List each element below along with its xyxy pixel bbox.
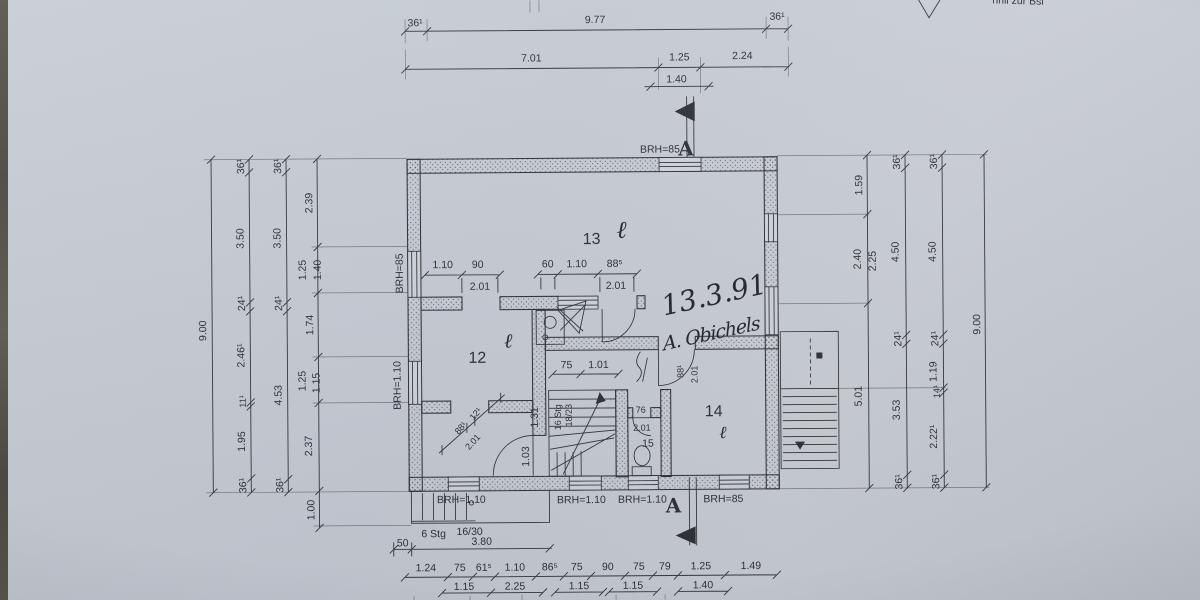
- dim-label: 75: [633, 561, 645, 573]
- dim-label: 36¹: [930, 474, 942, 490]
- dim-label: 2.25: [867, 251, 879, 272]
- dim-label: 24¹: [236, 295, 248, 311]
- dim-label: 1.15: [454, 581, 475, 593]
- dim-label: 1.59: [853, 175, 865, 196]
- handwritten-loop-14: ℓ: [719, 423, 726, 443]
- ext-stair-label: 6 Stg: [421, 528, 446, 540]
- brh-label: BRH=1.10: [391, 361, 403, 410]
- room-number-14: 14: [705, 403, 723, 420]
- dim-label: 76: [636, 405, 646, 415]
- floor-plan-drawing: 36¹ 9.77 36¹ 7.01 1.25 2.24 1.40 9.00 36…: [0, 0, 1200, 600]
- brh-label: BRH=1.10: [557, 494, 606, 506]
- dim-label: 1.03: [520, 446, 532, 467]
- dim-label: 1.40: [693, 579, 714, 591]
- handwritten-loop-12: ℓ: [504, 329, 513, 353]
- brh-label: BRH=1.10: [437, 494, 486, 506]
- dim-label: 4.53: [273, 385, 285, 406]
- photo-of-floor-plan: 36¹ 9.77 36¹ 7.01 1.25 2.24 1.40 9.00 36…: [0, 0, 1200, 600]
- stamp-shape-partial: [914, 0, 944, 18]
- brh-label: BRH=85: [703, 493, 743, 505]
- dim-label: 1.15: [623, 580, 644, 592]
- dim-label: 88¹: [675, 365, 685, 378]
- dim-label: 4.50: [927, 241, 939, 262]
- dim-label: 5.01: [853, 386, 865, 407]
- dim-label: 2.01: [633, 423, 651, 433]
- section-letter-bottom: A: [665, 493, 682, 517]
- dim-label: 11¹: [238, 395, 248, 407]
- dim-label: 36¹: [274, 477, 286, 493]
- walkline-arrow: [795, 442, 805, 450]
- toilet: [632, 446, 651, 476]
- brh-label: BRH=1.10: [618, 494, 667, 506]
- dim-label: 2.01: [470, 281, 491, 293]
- brh-label: BRH=85: [640, 143, 680, 155]
- dim-label: 2.40: [852, 249, 864, 270]
- handwritten-loop-13: ℓ: [616, 216, 626, 244]
- dim-label: 1.01: [588, 359, 609, 371]
- dim-label: 86⁵: [542, 561, 558, 573]
- dim-label: 36¹: [272, 158, 284, 174]
- dim-label: 24¹: [273, 295, 285, 311]
- exterior-stair-right: [780, 331, 839, 468]
- stair-label: 16 Stg: [553, 404, 563, 430]
- section-letter-top: A: [677, 136, 694, 160]
- dim-label: 36¹: [237, 477, 249, 493]
- dim-label: 1.95: [236, 431, 248, 452]
- dim-label: 88¹: [453, 420, 469, 436]
- dim-label: 1.40: [666, 73, 687, 85]
- dim-label: 1.49: [741, 560, 762, 572]
- dim-label: 9.77: [585, 14, 606, 26]
- section-arrow-top: [675, 101, 695, 121]
- dim-label: 9.00: [197, 320, 209, 341]
- dim-label: 60: [542, 258, 554, 270]
- dim-label: 2.01: [689, 366, 699, 384]
- dim-label: 1.00: [305, 500, 317, 521]
- dim-label: 12¹: [468, 406, 484, 422]
- stamp-text-partial: hnll zur Bsl: [992, 0, 1044, 8]
- dim-label: 36¹: [769, 11, 785, 23]
- dim-label: 7.01: [521, 52, 542, 64]
- stair-label: 18/23: [564, 404, 574, 427]
- dim-label: 2.22¹: [928, 424, 940, 449]
- dim-labels-top: 36¹ 9.77 36¹ 7.01 1.25 2.24 1.40: [407, 11, 785, 88]
- dim-label: 90: [472, 259, 484, 271]
- dim-label: 24¹: [892, 331, 904, 347]
- dim-label: 75: [571, 561, 583, 573]
- dim-label: 2.39: [303, 193, 315, 214]
- dim-label: 61⁵: [476, 562, 492, 574]
- dim-label: 9.00: [971, 314, 983, 335]
- dim-label: 14¹: [932, 385, 942, 398]
- handwritten-mark-hall: [636, 352, 647, 382]
- dim-label: 1.15: [569, 580, 590, 592]
- room-number-12: 12: [468, 350, 486, 367]
- section-arrow-bottom: [676, 526, 696, 544]
- room-number-13: 13: [583, 231, 601, 248]
- dim-label: 2.25: [505, 581, 526, 593]
- dim-label: 3.50: [234, 228, 246, 249]
- dim-label: 2.46¹: [235, 343, 247, 368]
- dim-label: 1.74: [304, 315, 316, 336]
- room-number-15: 15: [642, 438, 654, 450]
- dim-label: 2.01: [463, 432, 482, 452]
- dim-label: 1.25: [297, 260, 309, 281]
- dim-label: 2.01: [606, 280, 627, 292]
- dim-label: 1.15: [311, 373, 323, 394]
- dim-labels-right: 1.59 2.40 2.25 5.01 36¹ 4.50 24¹ 3.53 36…: [851, 153, 984, 490]
- brh-label: BRH=85: [394, 253, 406, 293]
- dim-labels-left: 9.00 36¹ 3.50 24¹ 2.46¹ 11¹ 1.95 36¹ 36¹…: [196, 158, 326, 521]
- dim-label: 1.25: [691, 560, 712, 572]
- main-staircase: [549, 390, 617, 476]
- stair-up-arrow: [596, 392, 606, 404]
- dim-label: 79: [659, 561, 671, 573]
- dim-label: 3.80: [471, 536, 492, 548]
- dim-label: 36¹: [928, 154, 940, 170]
- dim-label: 90: [602, 561, 614, 573]
- dim-label: 36¹: [893, 474, 905, 490]
- dim-label: 88⁵: [607, 258, 623, 270]
- dim-label: 36¹: [235, 158, 247, 174]
- dim-label: 4.50: [890, 242, 902, 263]
- dim-label: 36¹: [407, 17, 423, 29]
- dim-label: 1.31: [529, 407, 541, 428]
- dim-label: 75: [454, 562, 466, 574]
- dim-label: 1.10: [432, 259, 453, 271]
- dim-label: 1.10: [505, 562, 526, 574]
- dim-label: 50: [397, 537, 409, 549]
- dim-label: 1.25: [669, 51, 690, 63]
- dim-label: 1.40: [312, 260, 324, 281]
- dim-label: 2.37: [303, 436, 315, 457]
- dim-label: 1.25: [296, 371, 308, 392]
- dim-label: 75: [561, 359, 573, 371]
- dim-label: 36¹: [891, 154, 903, 170]
- dim-label: 24¹: [929, 331, 941, 347]
- stamp-partial: hnll zur Bsl: [914, 0, 1044, 18]
- dim-label: 1.10: [566, 258, 587, 270]
- dim-label: 2.24: [732, 50, 753, 62]
- dim-label: 1.24: [416, 562, 437, 574]
- dim-label: 3.50: [271, 228, 283, 249]
- dim-label: 1.19: [927, 361, 939, 382]
- dim-label: 3.53: [891, 400, 903, 421]
